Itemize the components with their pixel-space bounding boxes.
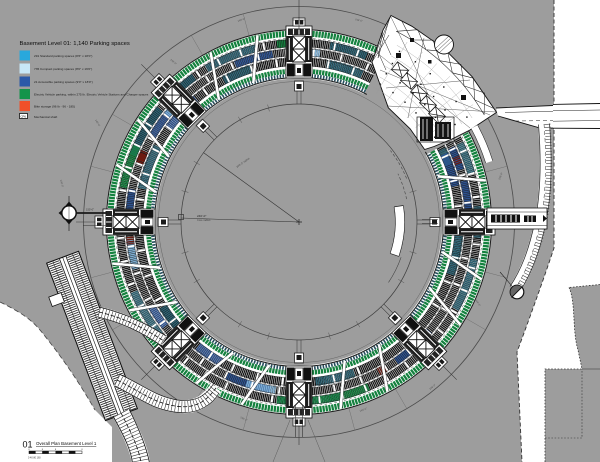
svg-text:Bike storage (96 lb - 96 - 185: Bike storage (96 lb - 96 - 185) bbox=[34, 105, 75, 109]
svg-text:150'-0": 150'-0" bbox=[86, 208, 94, 212]
svg-text:01: 01 bbox=[23, 440, 33, 450]
svg-text:Mechanical shaft: Mechanical shaft bbox=[34, 115, 57, 119]
svg-text:0 40 80 160: 0 40 80 160 bbox=[28, 457, 41, 460]
svg-text:240'-0": 240'-0" bbox=[197, 214, 206, 218]
svg-text:Core radius: Core radius bbox=[197, 218, 211, 222]
svg-text:Overall Plan Basement Level 1: Overall Plan Basement Level 1 bbox=[36, 441, 97, 446]
svg-text:CP6: CP6 bbox=[21, 115, 27, 119]
svg-text:Basement Level 01: 1,140 Parki: Basement Level 01: 1,140 Parking spaces bbox=[20, 41, 130, 47]
svg-text:Electric Vehicle parking, with: Electric Vehicle parking, within 275 lb.… bbox=[34, 93, 149, 97]
svg-text:21 Accessible parking spaces (: 21 Accessible parking spaces (9'0" x 18'… bbox=[34, 80, 93, 84]
svg-text:735 Compact parking spaces (8': 735 Compact parking spaces (8'6" x 16'0"… bbox=[34, 67, 92, 71]
svg-text:291 Standard parking spaces (8: 291 Standard parking spaces (8'6" x 18'0… bbox=[34, 54, 92, 58]
